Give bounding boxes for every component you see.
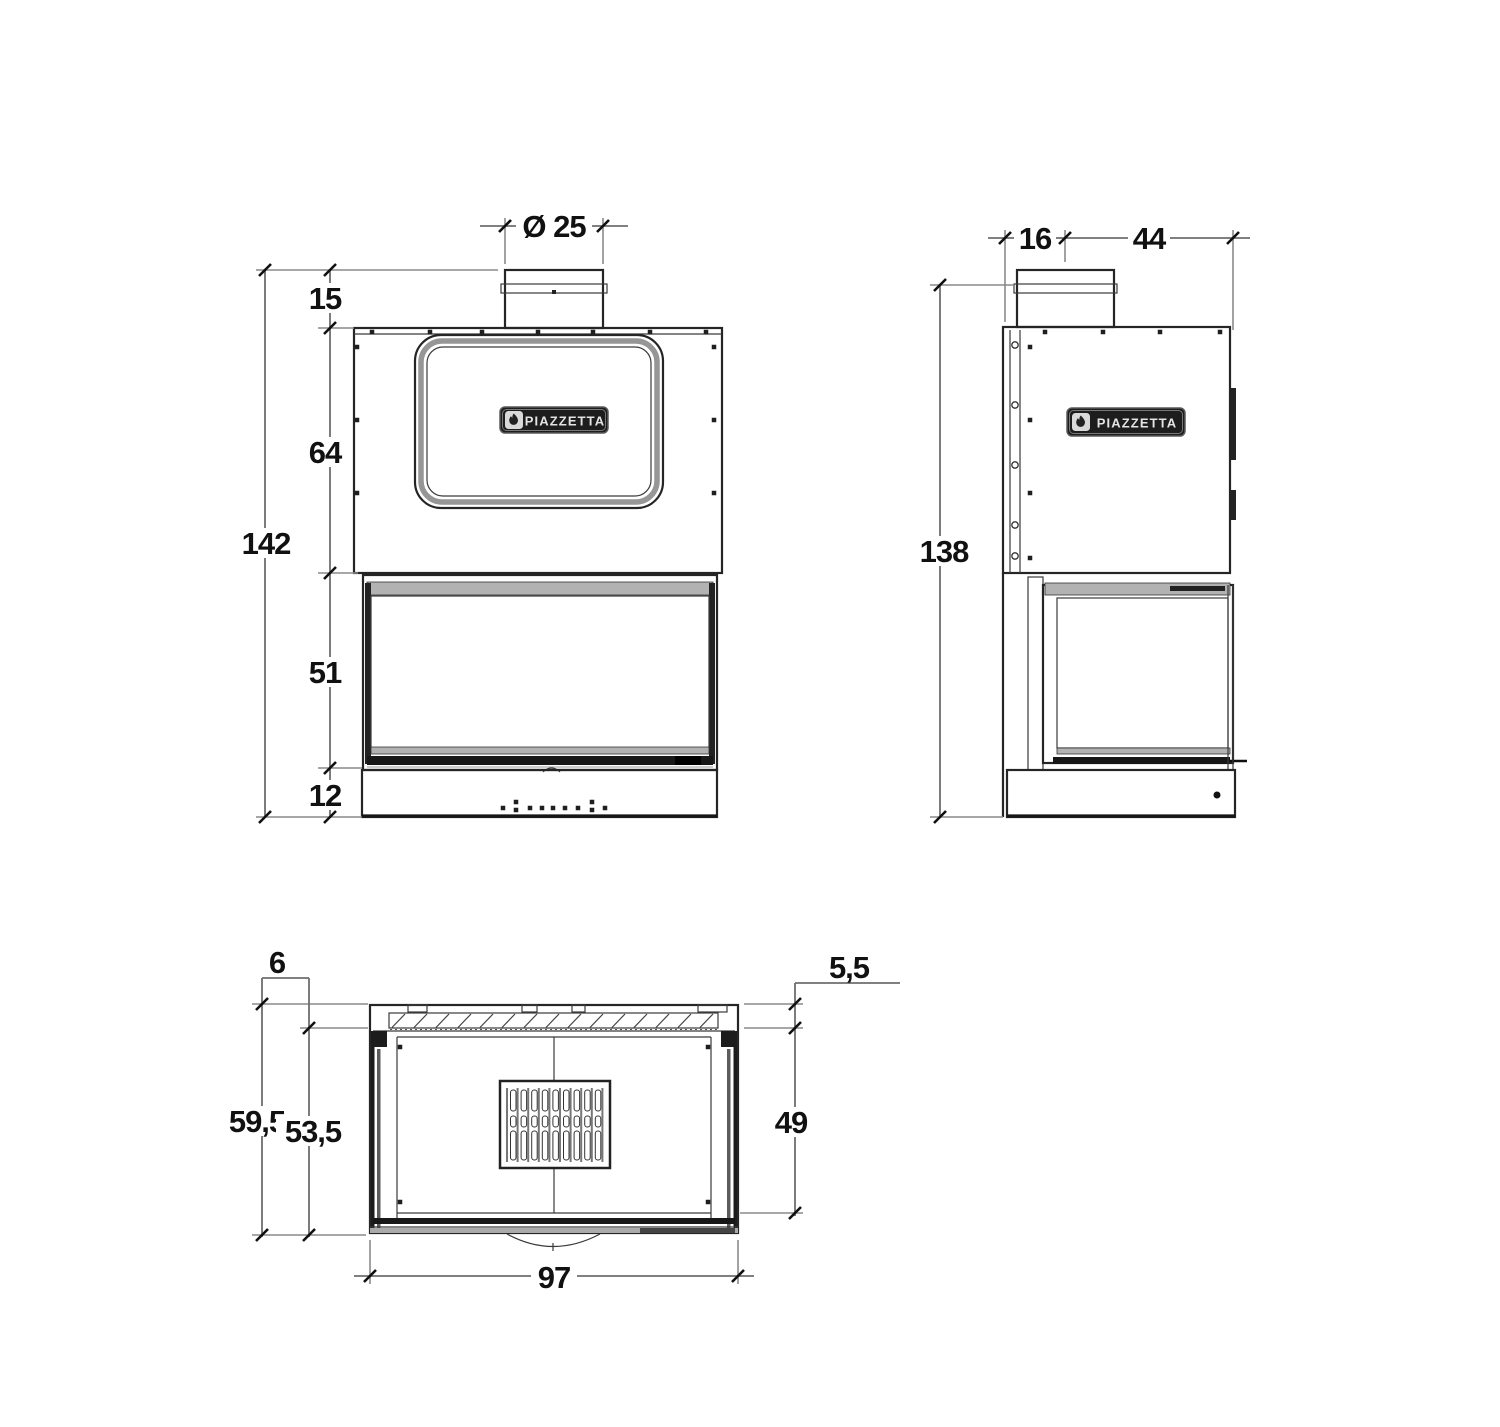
vent-dot bbox=[514, 808, 519, 813]
fireplace-dimension-drawing: PIAZZETTA Ø 25 bbox=[0, 0, 1500, 1427]
screw-dot bbox=[370, 330, 375, 335]
brand-logo-text: PIAZZETTA bbox=[525, 414, 605, 429]
screw-dot bbox=[1101, 330, 1106, 335]
grate-slot bbox=[595, 1116, 601, 1127]
front-dark-segment bbox=[640, 1228, 735, 1233]
panel-hole bbox=[1012, 402, 1018, 408]
grate-slot bbox=[564, 1090, 570, 1111]
brand-logo-text: PIAZZETTA bbox=[1097, 416, 1177, 431]
screw-dot bbox=[706, 1200, 711, 1205]
left-side-frame bbox=[377, 1049, 381, 1233]
grate-bar bbox=[538, 1088, 540, 1162]
dim-label-inner-depth: 53,5 bbox=[285, 1114, 342, 1149]
grate-slot bbox=[553, 1131, 559, 1160]
screw-dot bbox=[398, 1045, 403, 1050]
grate-slot bbox=[595, 1090, 601, 1111]
dim-label-flue-stub-height: 15 bbox=[309, 281, 342, 316]
screw-dot bbox=[712, 491, 717, 496]
grate-slot bbox=[532, 1131, 538, 1160]
grate-slot bbox=[511, 1116, 517, 1127]
grate-slot bbox=[574, 1090, 580, 1111]
screw-dot bbox=[712, 418, 717, 423]
dim-label-upper-body-height: 64 bbox=[309, 435, 343, 470]
grate-bar bbox=[506, 1088, 508, 1162]
vent-dot bbox=[576, 806, 581, 811]
dim-label-firebox-height: 51 bbox=[309, 655, 342, 690]
grate-slot bbox=[564, 1116, 570, 1127]
grate-bar bbox=[570, 1088, 572, 1162]
grate-slot bbox=[532, 1090, 538, 1111]
screw-dot bbox=[591, 330, 596, 335]
screw-dot bbox=[648, 330, 653, 335]
door-left-edge bbox=[365, 583, 371, 764]
screw-dot bbox=[355, 491, 360, 496]
dim-label-flue-diameter: Ø 25 bbox=[522, 209, 586, 244]
dim-label-rear-gap-left: 6 bbox=[269, 945, 286, 980]
door-bottom-gray-rail bbox=[371, 747, 709, 754]
panel-hole bbox=[1012, 553, 1018, 559]
screw-dot bbox=[1218, 330, 1223, 335]
left-side-glass-edge bbox=[371, 1031, 375, 1233]
grate-bar bbox=[548, 1088, 550, 1162]
grate-bar bbox=[517, 1088, 519, 1162]
flue-collar-screw bbox=[552, 290, 556, 294]
vent-dot bbox=[514, 800, 519, 805]
brand-badge-side: PIAZZETTA bbox=[1067, 408, 1185, 436]
door-top-rail bbox=[367, 582, 713, 595]
screw-dot bbox=[480, 330, 485, 335]
front-glass-edge-strip bbox=[1230, 490, 1236, 520]
grate-slot bbox=[564, 1131, 570, 1160]
grate-slot bbox=[521, 1116, 527, 1127]
dim-label-total-width: 97 bbox=[538, 1260, 570, 1295]
dim-label-flue-to-front: 44 bbox=[1133, 221, 1167, 256]
dim-label-rear-gap-right: 5,5 bbox=[829, 950, 870, 985]
side-door-bottom-dark-rail bbox=[1053, 757, 1230, 764]
dim-label-back-to-flue: 16 bbox=[1019, 221, 1052, 256]
grate-bar bbox=[559, 1088, 561, 1162]
side-door-bottom-gray-rail bbox=[1057, 748, 1230, 754]
vent-dot bbox=[501, 806, 506, 811]
grate-slot bbox=[511, 1090, 517, 1111]
screw-dot bbox=[398, 1200, 403, 1205]
grate-slot bbox=[585, 1131, 591, 1160]
vent-dot bbox=[528, 806, 533, 811]
brand-badge-front: PIAZZETTA bbox=[500, 407, 608, 433]
right-side-frame bbox=[727, 1049, 731, 1233]
dim-label-base-height: 12 bbox=[309, 778, 341, 813]
base-side-screw bbox=[1214, 792, 1221, 799]
front-door-band bbox=[373, 1218, 735, 1224]
vent-dot bbox=[590, 800, 595, 805]
grate-slot bbox=[532, 1116, 538, 1127]
side-door-top-dark-dash bbox=[1170, 586, 1225, 591]
door-right-edge bbox=[709, 583, 715, 764]
vent-dot bbox=[540, 806, 545, 811]
screw-dot bbox=[355, 418, 360, 423]
right-side-glass-edge bbox=[734, 1031, 738, 1233]
grate-slot bbox=[521, 1090, 527, 1111]
dim-label-total-height: 142 bbox=[242, 526, 291, 561]
vent-dot bbox=[563, 806, 568, 811]
screw-dot bbox=[355, 345, 360, 350]
grate-slot bbox=[553, 1116, 559, 1127]
grate-bar bbox=[591, 1088, 593, 1162]
screw-dot bbox=[1028, 418, 1033, 423]
door-bottom-dark-rail bbox=[367, 756, 713, 765]
grate-bar bbox=[580, 1088, 582, 1162]
dim-label-chamber-depth: 49 bbox=[775, 1105, 808, 1140]
panel-hole bbox=[1012, 462, 1018, 468]
screw-dot bbox=[1028, 556, 1033, 561]
screw-dot bbox=[1158, 330, 1163, 335]
grate-slot bbox=[595, 1131, 601, 1160]
vent-dot bbox=[551, 806, 556, 811]
grate-slot bbox=[553, 1090, 559, 1111]
vent-dot bbox=[603, 806, 608, 811]
grate-slot bbox=[542, 1116, 548, 1127]
grate-slot bbox=[542, 1090, 548, 1111]
vent-dot bbox=[590, 808, 595, 813]
screw-dot bbox=[712, 345, 717, 350]
grate-slot bbox=[521, 1131, 527, 1160]
grate-slot bbox=[585, 1090, 591, 1111]
grate-slot bbox=[511, 1131, 517, 1160]
screw-dot bbox=[536, 330, 541, 335]
grate-slot bbox=[542, 1131, 548, 1160]
grate-slot bbox=[585, 1116, 591, 1127]
grate-bar bbox=[527, 1088, 529, 1162]
grate-slot bbox=[574, 1131, 580, 1160]
dim-label-side-height: 138 bbox=[920, 534, 969, 569]
screw-dot bbox=[1028, 345, 1033, 350]
technical-drawing-page: PIAZZETTA Ø 25 bbox=[0, 0, 1500, 1427]
screw-dot bbox=[428, 330, 433, 335]
screw-dot bbox=[706, 1045, 711, 1050]
grate-slot bbox=[574, 1116, 580, 1127]
front-glass-edge-strip bbox=[1230, 388, 1236, 460]
screw-dot bbox=[704, 330, 709, 335]
panel-hole bbox=[1012, 522, 1018, 528]
screw-dot bbox=[1028, 491, 1033, 496]
grate-bar bbox=[601, 1088, 603, 1162]
door-latch-block bbox=[675, 756, 701, 765]
screw-dot bbox=[1043, 330, 1048, 335]
panel-hole bbox=[1012, 342, 1018, 348]
